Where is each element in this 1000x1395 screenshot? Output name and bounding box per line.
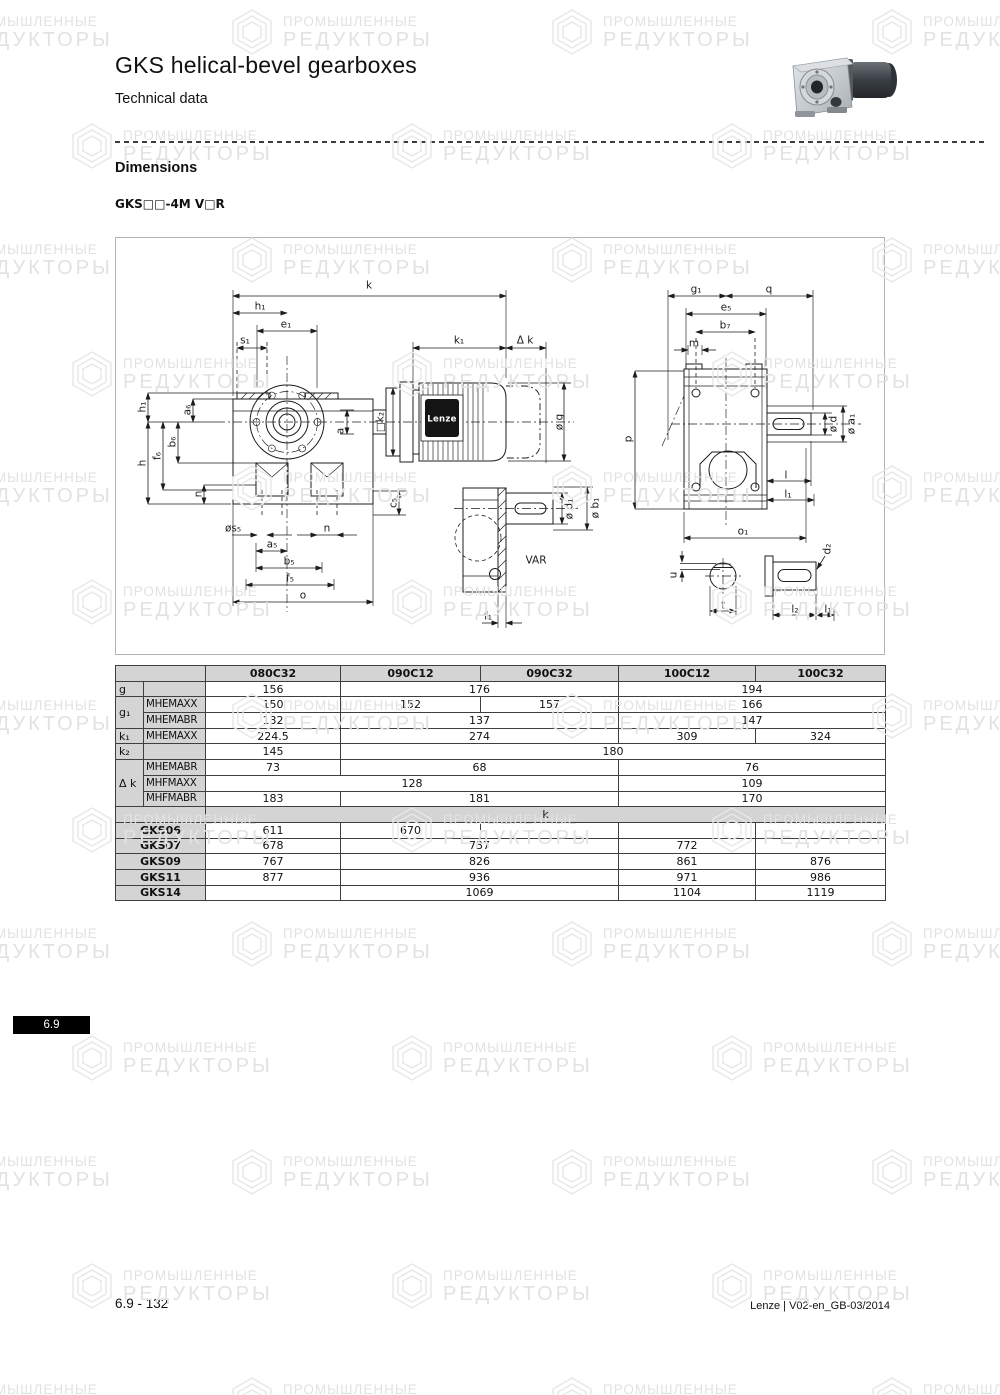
sub-row-label: MHEMABR	[144, 713, 206, 729]
column-header: 100C12	[619, 666, 756, 682]
dimension-label: a₆	[182, 405, 194, 416]
data-cell: 772	[619, 838, 756, 854]
gks-row-label: GKS09	[116, 854, 206, 870]
watermark-stamp: ПРОМЫШЛЕННЫЕ РЕДУКТОРЫ	[870, 920, 1000, 968]
data-cell: 73	[206, 760, 341, 776]
row-label: k₁	[116, 728, 144, 744]
sub-row-label: MHEMAXX	[144, 728, 206, 744]
gks-row-label: GKS11	[116, 869, 206, 885]
hexagon-logo-icon	[230, 920, 274, 968]
watermark-stamp: ПРОМЫШЛЕННЫЕ РЕДУКТОРЫ	[390, 1262, 593, 1310]
data-cell	[756, 838, 886, 854]
dimension-drawing-frame: Lenze	[115, 237, 885, 655]
watermark-line1: ПРОМЫШЛЕННЫЕ	[123, 1040, 273, 1055]
data-cell: 936	[341, 869, 619, 885]
k-band-header: k	[206, 807, 886, 823]
dimension-label: p	[623, 435, 635, 442]
hexagon-logo-icon	[550, 1148, 594, 1196]
sub-row-label: MHEMABR	[144, 760, 206, 776]
watermark-stamp: ПРОМЫШЛЕННЫЕ РЕДУКТОРЫ	[870, 1376, 1000, 1395]
hexagon-logo-icon	[390, 1034, 434, 1082]
watermark-line2: РЕДУКТОРЫ	[923, 941, 1000, 963]
dimension-label: t	[721, 600, 725, 612]
dimension-label: h₁	[137, 402, 149, 413]
table-row: GKS07678737772	[116, 838, 886, 854]
watermark-line1: ПРОМЫШЛЕННЫЕ	[0, 470, 113, 485]
sub-row-label: MHFMABR	[144, 791, 206, 807]
watermark-line1: ПРОМЫШЛЕННЫЕ	[443, 1040, 593, 1055]
watermark-stamp: ПРОМЫШЛЕННЫЕ РЕДУКТОРЫ	[230, 8, 433, 56]
hexagon-logo-icon	[710, 1262, 754, 1310]
table-row: GKS14106911041119	[116, 885, 886, 901]
data-cell: 876	[756, 854, 886, 870]
dimension-label: ø g	[554, 414, 566, 430]
watermark-line1: ПРОМЫШЛЕННЫЕ	[283, 1382, 433, 1395]
data-cell: 971	[619, 869, 756, 885]
dimension-label: f₅	[286, 573, 294, 585]
dimension-labels: kh₁e₁s₁k₁Δ kø gh₁a₆b₆f₆hn□k₂ac₅øs₅na₅b₅f…	[137, 280, 858, 623]
watermark-line1: ПРОМЫШЛЕННЫЕ	[923, 926, 1000, 941]
table-row: MHFMAXX128109	[116, 775, 886, 791]
watermark-line1: ПРОМЫШЛЕННЫЕ	[0, 698, 113, 713]
data-cell: 826	[341, 854, 619, 870]
table-row: k₂145180	[116, 744, 886, 760]
watermark-line1: ПРОМЫШЛЕННЫЕ	[0, 1154, 113, 1169]
data-cell: 224.5	[206, 728, 341, 744]
row-label	[144, 681, 206, 697]
page-number: 6.9 - 132	[115, 1296, 168, 1311]
row-label: g₁	[116, 697, 144, 728]
dimensions-table-grid: 080C32090C12090C32100C12100C32g156176194…	[115, 665, 886, 901]
data-cell: 1104	[619, 885, 756, 901]
hexagon-logo-icon	[230, 1376, 274, 1395]
watermark-line1: ПРОМЫШЛЕННЫЕ	[603, 1154, 753, 1169]
row-label: k₂	[116, 744, 144, 760]
watermark-line2: РЕДУКТОРЫ	[443, 1055, 593, 1077]
data-cell: 737	[341, 838, 619, 854]
catalog-page: { "page": { "title": "GKS helical-bevel …	[0, 0, 1000, 1395]
data-cell: 181	[341, 791, 619, 807]
dimension-label: øs₅	[225, 523, 241, 535]
watermark-line2: РЕДУКТОРЫ	[923, 257, 1000, 279]
data-cell: 109	[619, 775, 886, 791]
watermark-line2: РЕДУКТОРЫ	[603, 941, 753, 963]
hexagon-logo-icon	[230, 1148, 274, 1196]
watermark-line1: ПРОМЫШЛЕННЫЕ	[443, 1268, 593, 1283]
column-header: 090C32	[481, 666, 619, 682]
watermark-line1: ПРОМЫШЛЕННЫЕ	[763, 1268, 913, 1283]
watermark-stamp: ПРОМЫШЛЕННЫЕ РЕДУКТОРЫ	[710, 1034, 913, 1082]
row-label: g	[116, 681, 144, 697]
watermark-line2: РЕДУКТОРЫ	[283, 941, 433, 963]
watermark-line1: ПРОМЫШЛЕННЫЕ	[923, 1382, 1000, 1395]
hexagon-logo-icon	[870, 920, 914, 968]
watermark-line2: РЕДУКТОРЫ	[603, 1169, 753, 1191]
watermark-stamp: ПРОМЫШЛЕННЫЕ РЕДУКТОРЫ	[0, 920, 113, 968]
table-row: GKS11877936971986	[116, 869, 886, 885]
watermark-line2: РЕДУКТОРЫ	[0, 713, 113, 735]
data-cell	[756, 822, 886, 838]
column-header: 100C32	[756, 666, 886, 682]
watermark-line2: РЕДУКТОРЫ	[283, 1169, 433, 1191]
shaft-end-detail	[680, 551, 834, 621]
watermark-stamp: ПРОМЫШЛЕННЫЕ РЕДУКТОРЫ	[230, 1376, 433, 1395]
data-cell: 767	[206, 854, 341, 870]
watermark-line1: ПРОМЫШЛЕННЫЕ	[0, 1382, 113, 1395]
watermark-line1: ПРОМЫШЛЕННЫЕ	[0, 242, 113, 257]
dimension-label: f₁	[484, 611, 492, 623]
watermark-stamp: ПРОМЫШЛЕННЫЕ РЕДУКТОРЫ	[390, 122, 593, 170]
dimension-label: d₂	[822, 544, 834, 555]
watermark-line2: РЕДУКТОРЫ	[763, 1055, 913, 1077]
data-cell: 274	[341, 728, 619, 744]
hexagon-logo-icon	[70, 806, 114, 854]
page-title: GKS helical-bevel gearboxes	[115, 52, 417, 79]
column-header: 090C12	[341, 666, 481, 682]
data-cell: 137	[341, 713, 619, 729]
gks-row-label: GKS14	[116, 885, 206, 901]
dimension-label: e₁	[281, 319, 292, 331]
data-cell: 176	[341, 681, 619, 697]
data-cell: 986	[756, 869, 886, 885]
watermark-stamp: ПРОМЫШЛЕННЫЕ РЕДУКТОРЫ	[0, 464, 113, 512]
chapter-side-tab: 6.9	[13, 1016, 90, 1034]
watermark-stamp: ПРОМЫШЛЕННЫЕ РЕДУКТОРЫ	[550, 8, 753, 56]
data-cell: 128	[206, 775, 619, 791]
dimension-label: □k₂	[375, 412, 387, 432]
watermark-stamp: ПРОМЫШЛЕННЫЕ РЕДУКТОРЫ	[0, 1376, 113, 1395]
watermark-line2: РЕДУКТОРЫ	[443, 1283, 593, 1305]
table-row: MHFMABR183181170	[116, 791, 886, 807]
watermark-stamp: ПРОМЫШЛЕННЫЕ РЕДУКТОРЫ	[550, 920, 753, 968]
watermark-line2: РЕДУКТОРЫ	[123, 1055, 273, 1077]
dimension-label: ø b₁	[590, 498, 602, 519]
dimension-label: n	[193, 491, 205, 498]
dimensions-table: 080C32090C12090C32100C12100C32g156176194…	[115, 665, 885, 901]
table-row: Δ kMHEMABR736876	[116, 760, 886, 776]
watermark-line2: РЕДУКТОРЫ	[283, 29, 433, 51]
data-cell	[619, 822, 756, 838]
sub-row-label: MHEMAXX	[144, 697, 206, 713]
watermark-stamp: ПРОМЫШЛЕННЫЕ РЕДУКТОРЫ	[230, 1148, 433, 1196]
data-cell: 152	[341, 697, 481, 713]
watermark-stamp: ПРОМЫШЛЕННЫЕ РЕДУКТОРЫ	[70, 1034, 273, 1082]
data-cell: 309	[619, 728, 756, 744]
dimension-label: s₁	[240, 335, 250, 347]
dimension-label: ø d₁	[564, 499, 576, 520]
row-label	[144, 744, 206, 760]
hexagon-logo-icon	[550, 920, 594, 968]
data-cell: 1119	[756, 885, 886, 901]
hexagon-logo-icon	[390, 122, 434, 170]
table-row: k	[116, 807, 886, 823]
watermark-line1: ПРОМЫШЛЕННЫЕ	[923, 470, 1000, 485]
data-cell: 611	[206, 822, 341, 838]
dimension-label: l	[785, 470, 788, 482]
watermark-line2: РЕДУКТОРЫ	[923, 713, 1000, 735]
dimension-label: b₇	[720, 320, 731, 332]
dimension-label: q	[766, 284, 773, 296]
watermark-stamp: ПРОМЫШЛЕННЫЕ РЕДУКТОРЫ	[0, 692, 113, 740]
watermark-stamp: ПРОМЫШЛЕННЫЕ РЕДУКТОРЫ	[390, 1034, 593, 1082]
row-label: Δ k	[116, 760, 144, 807]
watermark-line2: РЕДУКТОРЫ	[923, 1169, 1000, 1191]
data-cell: 166	[619, 697, 886, 713]
hexagon-logo-icon	[230, 8, 274, 56]
data-cell: 145	[206, 744, 341, 760]
row-label	[116, 807, 206, 823]
watermark-line2: РЕДУКТОРЫ	[603, 29, 753, 51]
dimension-label: h	[137, 460, 149, 467]
hexagon-logo-icon	[70, 122, 114, 170]
table-row: GKS06611670	[116, 822, 886, 838]
watermark-stamp: ПРОМЫШЛЕННЫЕ РЕДУКТОРЫ	[550, 1148, 753, 1196]
dimension-label: m	[689, 338, 699, 350]
front-view: Lenze	[148, 290, 574, 612]
hexagon-logo-icon	[550, 1376, 594, 1395]
dimension-label: k	[366, 280, 373, 292]
watermark-line1: ПРОМЫШЛЕННЫЕ	[283, 926, 433, 941]
watermark-stamp: ПРОМЫШЛЕННЫЕ РЕДУКТОРЫ	[710, 122, 913, 170]
dimension-label: f₆	[152, 452, 164, 460]
dimension-label: c₅	[388, 498, 400, 508]
dimension-label: e₅	[721, 302, 732, 314]
table-row: MHEMABR132137147	[116, 713, 886, 729]
watermark-line1: ПРОМЫШЛЕННЫЕ	[603, 14, 753, 29]
watermark-line1: ПРОМЫШЛЕННЫЕ	[923, 242, 1000, 257]
watermark-line1: ПРОМЫШЛЕННЫЕ	[283, 1154, 433, 1169]
data-cell: 877	[206, 869, 341, 885]
watermark-line1: ПРОМЫШЛЕННЫЕ	[763, 1040, 913, 1055]
data-cell: 150	[206, 697, 341, 713]
watermark-stamp: ПРОМЫШЛЕННЫЕ РЕДУКТОРЫ	[230, 920, 433, 968]
watermark-line2: РЕДУКТОРЫ	[0, 485, 113, 507]
sub-row-label: MHFMAXX	[144, 775, 206, 791]
watermark-stamp: ПРОМЫШЛЕННЫЕ РЕДУКТОРЫ	[870, 464, 1000, 512]
model-code: GKS□□-4M V□R	[115, 197, 225, 211]
data-cell: 156	[206, 681, 341, 697]
dimension-label: g₁	[691, 284, 702, 296]
hexagon-logo-icon	[70, 578, 114, 626]
data-cell: 1069	[341, 885, 619, 901]
hexagon-logo-icon	[70, 1034, 114, 1082]
watermark-line2: РЕДУКТОРЫ	[0, 1169, 113, 1191]
watermark-line2: РЕДУКТОРЫ	[0, 257, 113, 279]
table-row: GKS09767826861876	[116, 854, 886, 870]
hexagon-logo-icon	[550, 8, 594, 56]
watermark-line1: ПРОМЫШЛЕННЫЕ	[923, 14, 1000, 29]
watermark-line1: ПРОМЫШЛЕННЫЕ	[123, 1268, 273, 1283]
watermark-line2: РЕДУКТОРЫ	[443, 143, 593, 165]
watermark-stamp: ПРОМЫШЛЕННЫЕ РЕДУКТОРЫ	[550, 1376, 753, 1395]
dimension-label: o	[300, 590, 306, 602]
watermark-line1: ПРОМЫШЛЕННЫЕ	[283, 14, 433, 29]
hexagon-logo-icon	[710, 1034, 754, 1082]
dimension-label: u	[668, 572, 680, 579]
data-cell: 678	[206, 838, 341, 854]
dimension-label: b₅	[284, 556, 295, 568]
hexagon-logo-icon	[390, 1262, 434, 1310]
data-cell: 324	[756, 728, 886, 744]
watermark-line2: РЕДУКТОРЫ	[923, 29, 1000, 51]
section-heading: Dimensions	[115, 160, 197, 176]
watermark-stamp: ПРОМЫШЛЕННЫЕ РЕДУКТОРЫ	[870, 692, 1000, 740]
watermark-line2: РЕДУКТОРЫ	[923, 485, 1000, 507]
dimension-label: Δ k	[517, 335, 535, 347]
watermark-line1: ПРОМЫШЛЕННЫЕ	[923, 1154, 1000, 1169]
watermark-line2: РЕДУКТОРЫ	[0, 941, 113, 963]
watermark-stamp: ПРОМЫШЛЕННЫЕ РЕДУКТОРЫ	[0, 236, 113, 284]
hexagon-logo-icon	[70, 350, 114, 398]
dashed-divider	[115, 141, 985, 143]
data-cell: 76	[619, 760, 886, 776]
row-label	[116, 666, 206, 682]
watermark-line1: ПРОМЫШЛЕННЫЕ	[603, 1382, 753, 1395]
gearbox-product-photo	[783, 45, 905, 123]
dimension-label: l₁	[824, 604, 831, 616]
watermark-line2: РЕДУКТОРЫ	[0, 29, 113, 51]
dimension-label: h₁	[255, 301, 266, 313]
gks-row-label: GKS07	[116, 838, 206, 854]
hexagon-logo-icon	[870, 1376, 914, 1395]
dimension-label: k₁	[454, 335, 464, 347]
dimension-label: l₂	[791, 604, 798, 616]
watermark-line2: РЕДУКТОРЫ	[763, 143, 913, 165]
dimension-label: o₁	[738, 526, 749, 538]
gks-row-label: GKS06	[116, 822, 206, 838]
column-header: 080C32	[206, 666, 341, 682]
hexagon-logo-icon	[710, 122, 754, 170]
dimension-label: l₁	[784, 489, 791, 501]
watermark-stamp: ПРОМЫШЛЕННЫЕ РЕДУКТОРЫ	[0, 1148, 113, 1196]
data-cell	[481, 822, 619, 838]
watermark-stamp: ПРОМЫШЛЕННЫЕ РЕДУКТОРЫ	[0, 8, 113, 56]
watermark-line1: ПРОМЫШЛЕННЫЕ	[0, 926, 113, 941]
table-row: 080C32090C12090C32100C12100C32	[116, 666, 886, 682]
data-cell	[206, 885, 341, 901]
data-cell: 180	[341, 744, 886, 760]
data-cell: 132	[206, 713, 341, 729]
watermark-stamp: ПРОМЫШЛЕННЫЕ РЕДУКТОРЫ	[70, 1262, 273, 1310]
watermark-line1: ПРОМЫШЛЕННЫЕ	[923, 698, 1000, 713]
hexagon-logo-icon	[70, 1262, 114, 1310]
watermark-line1: ПРОМЫШЛЕННЫЕ	[603, 926, 753, 941]
dimension-label: a₅	[267, 539, 278, 551]
dimension-label: b₆	[167, 437, 179, 448]
watermark-line1: ПРОМЫШЛЕННЫЕ	[0, 14, 113, 29]
data-cell: 183	[206, 791, 341, 807]
data-cell: 170	[619, 791, 886, 807]
technical-drawing: Lenze	[116, 238, 884, 654]
dimension-label: VAR	[526, 555, 547, 567]
dimension-label: ø d	[828, 416, 840, 432]
data-cell: 68	[341, 760, 619, 776]
dimension-label: n	[324, 523, 331, 535]
table-row: g156176194	[116, 681, 886, 697]
motor-brand-label: Lenze	[427, 415, 456, 425]
table-row: g₁MHEMAXX150152157166	[116, 697, 886, 713]
hexagon-logo-icon	[870, 1148, 914, 1196]
data-cell: 670	[341, 822, 481, 838]
table-row: k₁MHEMAXX224.5274309324	[116, 728, 886, 744]
watermark-stamp: ПРОМЫШЛЕННЫЕ РЕДУКТОРЫ	[870, 236, 1000, 284]
data-cell: 157	[481, 697, 619, 713]
dimension-label: ø a₁	[846, 414, 858, 434]
data-cell: 194	[619, 681, 886, 697]
data-cell: 861	[619, 854, 756, 870]
document-reference: Lenze | V02-en_GB-03/2014	[750, 1300, 890, 1312]
dimension-label: a	[335, 428, 347, 434]
watermark-stamp: ПРОМЫШЛЕННЫЕ РЕДУКТОРЫ	[870, 1148, 1000, 1196]
data-cell: 147	[619, 713, 886, 729]
page-subtitle: Technical data	[115, 91, 208, 107]
